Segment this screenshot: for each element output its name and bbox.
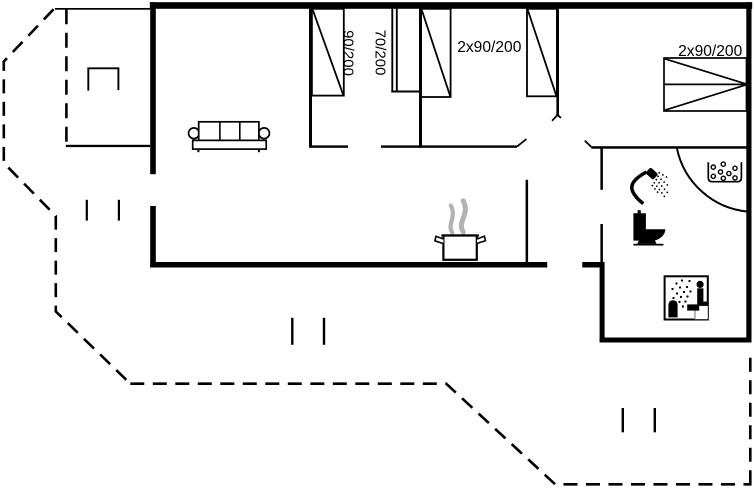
svg-text:2x90/200: 2x90/200 [678, 43, 742, 60]
svg-text:90/200: 90/200 [340, 30, 357, 76]
svg-text:2x90/200: 2x90/200 [457, 39, 521, 56]
svg-text:70/200: 70/200 [371, 30, 388, 76]
